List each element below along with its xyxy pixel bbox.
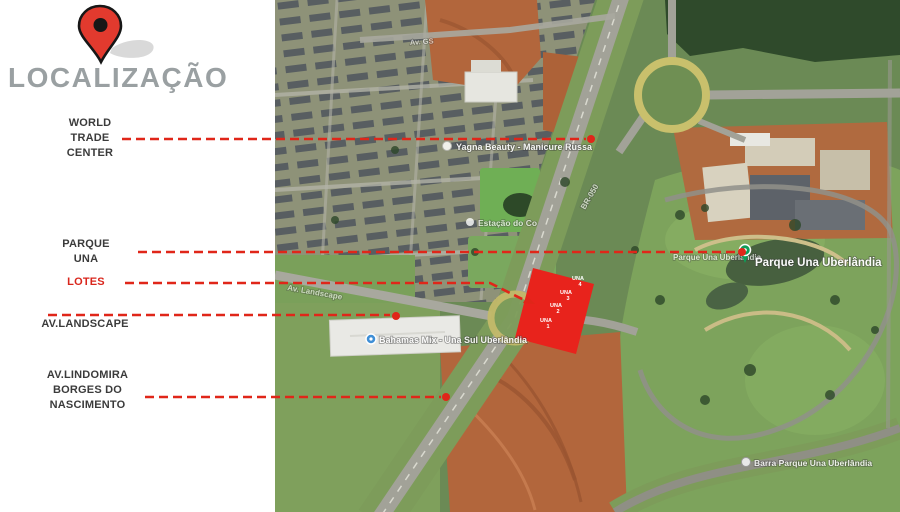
place-dot-icon	[466, 218, 474, 226]
lot-number: 3	[566, 296, 569, 302]
label-line: AV.LANDSCAPE	[10, 317, 160, 332]
label-line: PARQUE	[26, 237, 146, 252]
map-label-bar-parque: Barra Parque Una Uberlândia	[754, 458, 872, 468]
label-line: AV.LINDOMIRA	[25, 368, 150, 383]
label-world-trade-center: WORLD TRADE CENTER	[30, 116, 150, 161]
store-pin-glyph	[369, 337, 372, 340]
label-av-lindomira: AV.LINDOMIRA BORGES DO NASCIMENTO	[25, 368, 150, 413]
label-av-landscape: AV.LANDSCAPE	[10, 317, 160, 332]
map-label-parque-una-main: Parque Una Uberlândia	[755, 257, 882, 269]
label-line: TRADE	[30, 131, 150, 146]
location-pin-icon	[70, 2, 170, 70]
place-dot-icon	[443, 142, 452, 151]
map-label-supermarket: Bahamas Mix - Una Sul Uberlândia	[379, 335, 528, 345]
label-line: UNA	[26, 252, 146, 267]
location-slide: LOCALIZAÇÃO WORLD TRADE CENTER PARQUE UN…	[0, 0, 900, 512]
lot-number: 1	[546, 324, 549, 330]
label-line: LOTES	[26, 275, 146, 290]
pin-shadow-swoosh	[110, 40, 154, 58]
label-line: NASCIMENTO	[25, 398, 150, 413]
place-dot-icon	[742, 458, 751, 467]
label-line: BORGES DO	[25, 383, 150, 398]
label-parque-una: PARQUE UNA	[26, 237, 146, 267]
page-title: LOCALIZAÇÃO	[8, 62, 228, 94]
label-line: CENTER	[30, 146, 150, 161]
road-label-av-top: Av. GS	[410, 36, 434, 47]
satellite-map: UNA 4 UNA 3 UNA 2 UNA 1 Yagna Beauty - M…	[275, 0, 900, 512]
label-line: WORLD	[30, 116, 150, 131]
map-label-station: Estação do Co	[478, 218, 537, 228]
map-label-beauty-salon: Yagna Beauty - Manicure Russa	[456, 142, 593, 152]
pin-hole	[94, 18, 108, 32]
label-lotes: LOTES	[26, 275, 146, 290]
lot-number: 2	[556, 309, 559, 315]
